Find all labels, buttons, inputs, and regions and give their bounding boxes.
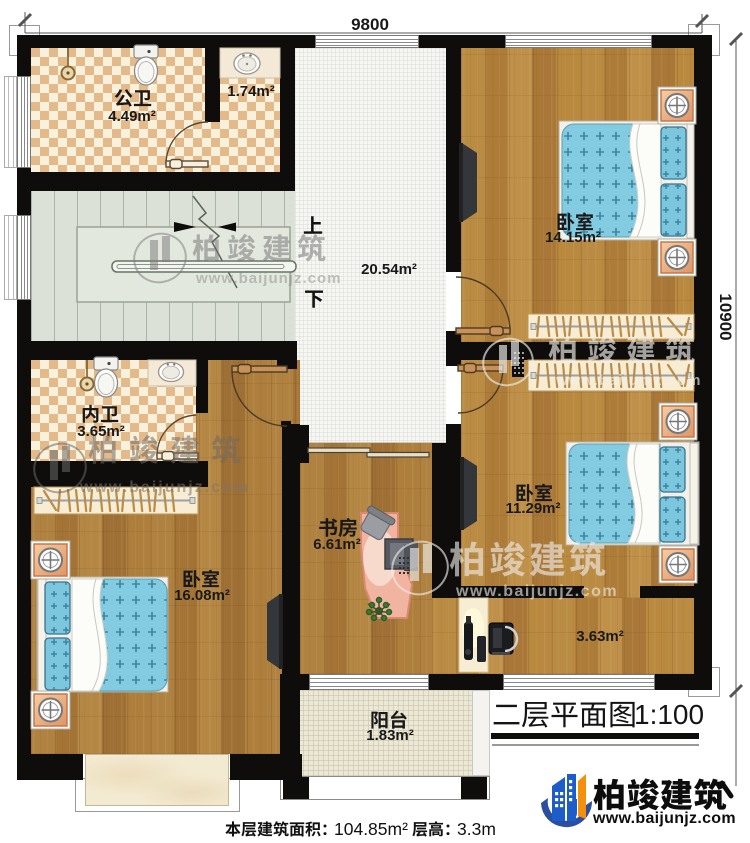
svg-text:www.baijunjz.com: www.baijunjz.com bbox=[555, 372, 701, 389]
svg-text:104.85m²: 104.85m² bbox=[334, 819, 408, 839]
svg-text:www.baijunjz.com: www.baijunjz.com bbox=[455, 583, 618, 600]
svg-text:www.baijunjz.com: www.baijunjz.com bbox=[79, 479, 250, 496]
svg-text:www.baijunjz.com: www.baijunjz.com bbox=[195, 270, 341, 287]
svg-text:3.3m: 3.3m bbox=[457, 819, 496, 839]
